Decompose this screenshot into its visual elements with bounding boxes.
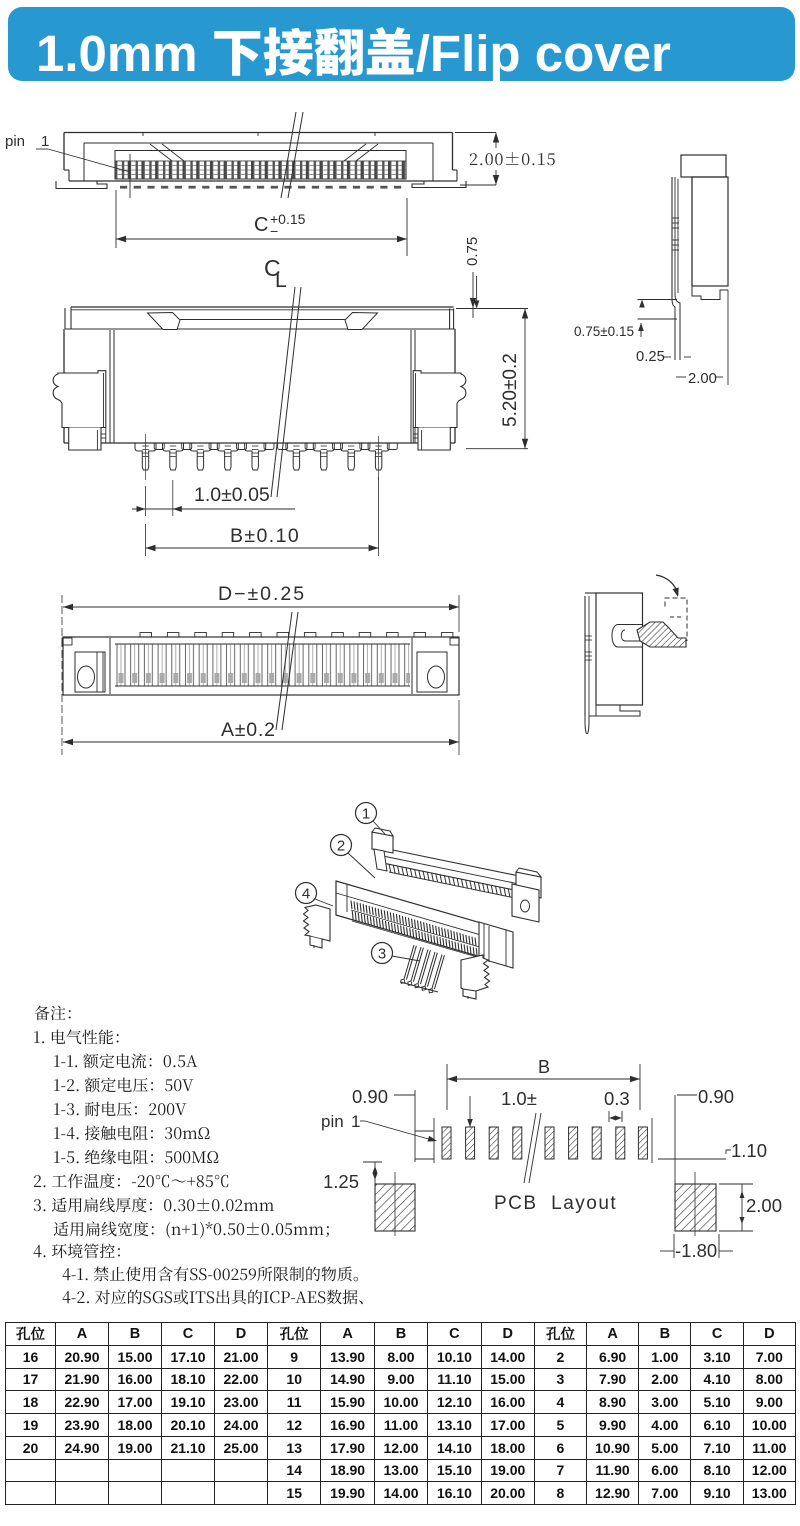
- svg-text:A±0.2: A±0.2: [221, 719, 276, 741]
- svg-text:0.75±0.15: 0.75±0.15: [574, 324, 634, 339]
- svg-text:0.25: 0.25: [636, 349, 665, 365]
- svg-text:2.00±0.15: 2.00±0.15: [469, 146, 556, 170]
- svg-text:5.20±0.2: 5.20±0.2: [500, 353, 521, 427]
- svg-text:D−±0.25: D−±0.25: [218, 583, 306, 605]
- svg-text:0.90: 0.90: [352, 1086, 388, 1107]
- svg-text:B±0.10: B±0.10: [230, 525, 300, 547]
- svg-text:L: L: [275, 269, 287, 292]
- svg-text:0.3: 0.3: [604, 1088, 630, 1109]
- svg-text:B: B: [538, 1057, 550, 1077]
- svg-text:1.0±0.05: 1.0±0.05: [194, 484, 270, 506]
- svg-text:-1.80: -1.80: [675, 1240, 717, 1261]
- svg-text:1.10: 1.10: [731, 1140, 767, 1161]
- svg-text:0.75: 0.75: [464, 237, 481, 266]
- svg-text:pin: pin: [5, 133, 25, 150]
- svg-text:C: C: [254, 214, 268, 236]
- svg-text:−: −: [270, 223, 278, 239]
- svg-text:PCB Layout: PCB Layout: [494, 1193, 617, 1214]
- svg-text:1: 1: [351, 1112, 360, 1131]
- svg-text:2.00: 2.00: [746, 1195, 782, 1216]
- svg-text:1: 1: [41, 133, 49, 150]
- svg-text:1.0±: 1.0±: [501, 1088, 537, 1109]
- svg-text:1.25: 1.25: [323, 1171, 359, 1192]
- svg-text:0.90: 0.90: [698, 1086, 734, 1107]
- svg-text:2: 2: [337, 838, 345, 855]
- svg-text:pin: pin: [321, 1112, 344, 1131]
- svg-text:2.00: 2.00: [688, 371, 717, 387]
- svg-text:1: 1: [362, 806, 370, 823]
- svg-text:3: 3: [378, 946, 386, 963]
- svg-text:4: 4: [302, 886, 310, 903]
